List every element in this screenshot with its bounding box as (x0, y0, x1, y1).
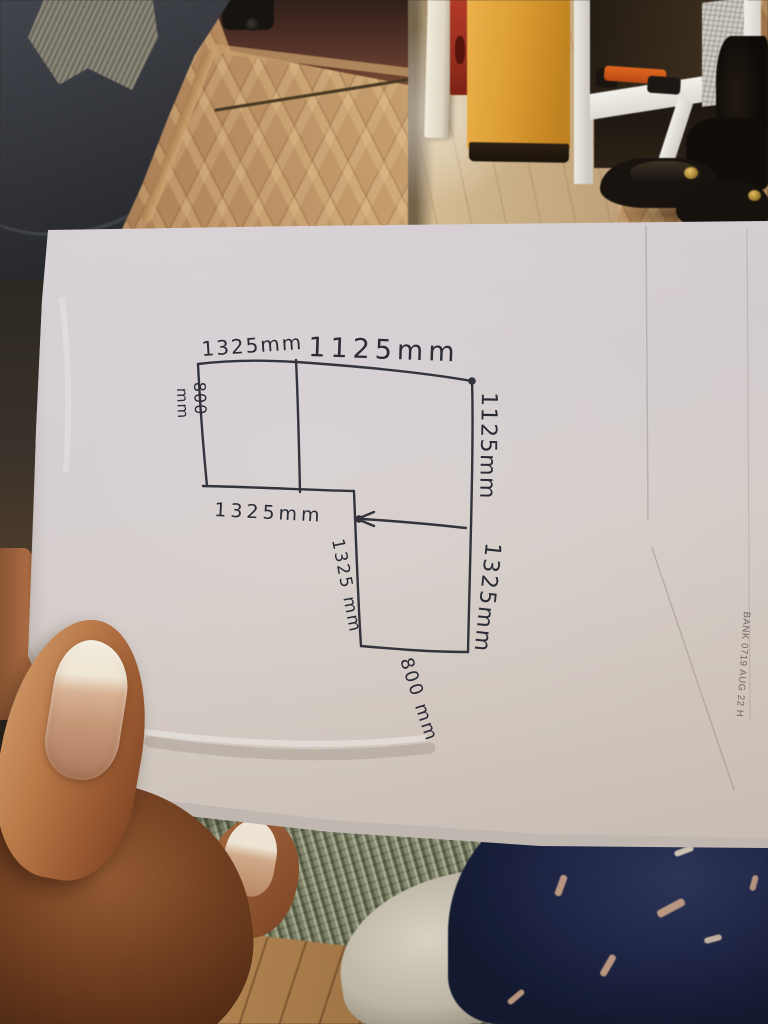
red-door-mark (455, 36, 465, 64)
photo-of-envelope-with-floorplan-sketch: 1325mm 1125mm 800 mm 1325mm 1125mm 1325m… (0, 0, 768, 1024)
toy-front-wheels (647, 76, 681, 95)
mustard-wooden-cabinet (467, 0, 570, 150)
vertical-fold-line (646, 226, 648, 520)
label-top-right-width: 1125mm (308, 332, 460, 368)
label-inner-left-width: 1325mm (214, 499, 324, 527)
cabinet-dark-base (469, 142, 569, 163)
orange-toy-car (595, 55, 685, 99)
inner-divider-line (296, 360, 300, 492)
caster-wheel (246, 18, 259, 31)
gold-buckle (748, 190, 761, 201)
inner-arrow-line (362, 519, 466, 528)
fabric-pattern-mark (506, 988, 525, 1005)
diagonal-crease (652, 548, 734, 790)
label-top-left-width: 1325mm (201, 330, 304, 361)
measurement-labels: 1325mm 1125mm 800 mm 1325mm 1125mm 1325m… (173, 330, 505, 744)
dark-furniture-leg (222, 0, 274, 30)
label-left-height-unit: mm (173, 388, 192, 420)
gold-buckle (684, 167, 698, 179)
fabric-pattern-mark (554, 874, 568, 897)
corner-ink-dot (469, 378, 474, 383)
left-crease-highlight (62, 300, 68, 470)
outline-step-horizontal (203, 486, 354, 491)
label-left-height-value: 800 (190, 381, 210, 415)
label-right-lower-height: 1325mm (468, 541, 504, 654)
label-right-upper-height: 1125mm (474, 392, 501, 500)
fabric-pattern-mark (704, 934, 723, 944)
white-door-frame (424, 0, 452, 138)
arrow-tip-dot (356, 516, 361, 521)
fabric-pattern-mark (656, 897, 686, 918)
fabric-pattern-mark (599, 953, 617, 977)
label-inner-vertical-height: 1325 mm (327, 537, 365, 635)
label-bottom-width: 800 mm (395, 655, 442, 744)
fabric-pattern-mark (749, 874, 759, 891)
outline-bottom-edge (361, 646, 468, 652)
outline-right-edge (468, 381, 473, 652)
